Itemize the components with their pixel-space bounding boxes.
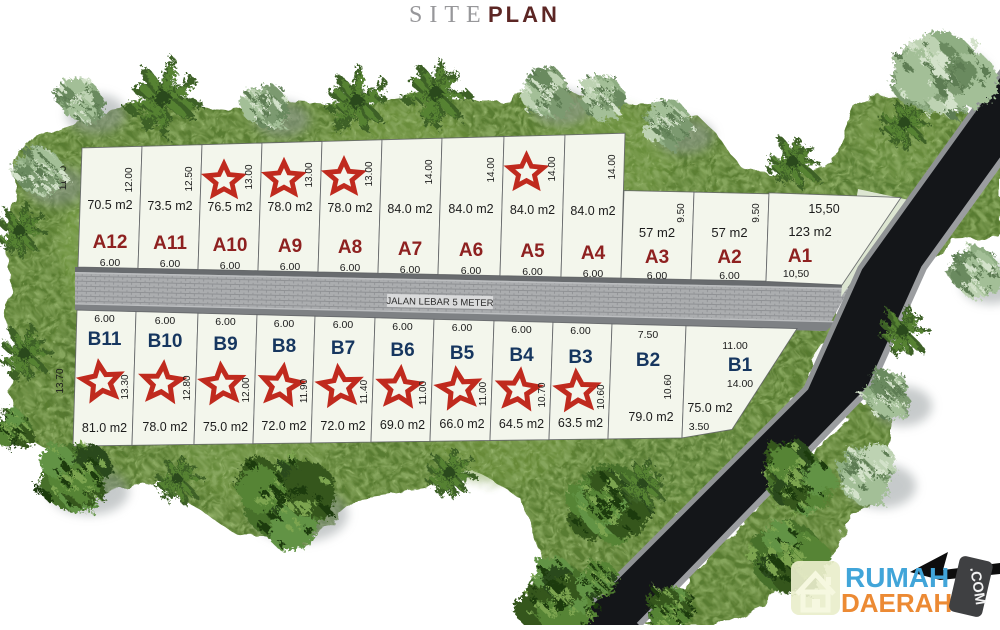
svg-text:6.00: 6.00 <box>719 270 740 282</box>
svg-text:B11: B11 <box>88 329 122 350</box>
svg-text:6.00: 6.00 <box>220 260 241 272</box>
svg-text:76.5 m2: 76.5 m2 <box>207 200 252 214</box>
svg-text:13.30: 13.30 <box>120 374 131 399</box>
svg-text:11.00: 11.00 <box>722 340 748 352</box>
svg-text:6.00: 6.00 <box>461 265 482 277</box>
svg-text:A4: A4 <box>581 243 606 264</box>
svg-text:7.50: 7.50 <box>638 329 659 341</box>
svg-text:10,50: 10,50 <box>783 268 809 280</box>
svg-text:6.00: 6.00 <box>100 257 121 269</box>
svg-text:14.00: 14.00 <box>424 159 435 184</box>
svg-text:11.00: 11.00 <box>418 380 429 405</box>
svg-text:PLAN: PLAN <box>488 2 560 27</box>
svg-text:10.60: 10.60 <box>663 374 674 399</box>
svg-text:A11: A11 <box>153 233 187 254</box>
svg-text:JALAN LEBAR 5 METER: JALAN LEBAR 5 METER <box>386 296 494 309</box>
svg-text:69.0 m2: 69.0 m2 <box>380 418 425 432</box>
svg-text:78.0 m2: 78.0 m2 <box>142 420 187 434</box>
svg-text:A5: A5 <box>520 241 545 262</box>
svg-text:A2: A2 <box>717 247 741 268</box>
svg-text:70.5 m2: 70.5 m2 <box>87 198 132 212</box>
svg-text:57 m2: 57 m2 <box>639 225 675 240</box>
svg-text:12.00: 12.00 <box>241 377 252 402</box>
svg-text:A7: A7 <box>398 239 422 260</box>
svg-text:6.00: 6.00 <box>94 313 115 325</box>
svg-text:10.70: 10.70 <box>537 382 548 407</box>
svg-text:13.00: 13.00 <box>244 164 255 189</box>
svg-text:6.00: 6.00 <box>570 325 591 337</box>
svg-text:79.0 m2: 79.0 m2 <box>628 410 673 424</box>
svg-text:75.0 m2: 75.0 m2 <box>203 420 248 434</box>
svg-text:12.00: 12.00 <box>124 167 135 192</box>
svg-text:6.00: 6.00 <box>522 266 543 278</box>
svg-text:A6: A6 <box>459 240 483 261</box>
svg-text:72.0 m2: 72.0 m2 <box>261 419 306 433</box>
svg-text:9.50: 9.50 <box>751 203 762 223</box>
svg-text:B1: B1 <box>728 355 753 376</box>
svg-text:75.0 m2: 75.0 m2 <box>687 401 732 415</box>
svg-text:6.00: 6.00 <box>333 319 354 331</box>
svg-text:6.00: 6.00 <box>400 264 421 276</box>
svg-text:B2: B2 <box>636 350 660 371</box>
svg-text:6.00: 6.00 <box>215 316 236 328</box>
svg-text:B7: B7 <box>331 338 355 359</box>
svg-text:66.0 m2: 66.0 m2 <box>439 417 484 431</box>
svg-text:6.00: 6.00 <box>274 318 295 330</box>
svg-text:3.50: 3.50 <box>689 421 710 433</box>
svg-text:14.00: 14.00 <box>486 157 497 182</box>
svg-text:A12: A12 <box>93 232 128 253</box>
svg-text:6.00: 6.00 <box>340 262 361 274</box>
svg-text:10.60: 10.60 <box>596 384 607 409</box>
svg-text:63.5 m2: 63.5 m2 <box>558 416 603 430</box>
svg-text:81.0 m2: 81.0 m2 <box>82 421 127 435</box>
svg-text:72.0 m2: 72.0 m2 <box>320 419 365 433</box>
svg-text:64.5 m2: 64.5 m2 <box>499 417 544 431</box>
svg-text:A1: A1 <box>788 246 813 267</box>
svg-text:13.00: 13.00 <box>364 161 375 186</box>
svg-text:A8: A8 <box>338 237 362 258</box>
svg-text:6.00: 6.00 <box>583 268 604 280</box>
svg-text:B9: B9 <box>213 334 237 355</box>
svg-text:84.0 m2: 84.0 m2 <box>570 204 615 218</box>
svg-text:123 m2: 123 m2 <box>788 224 831 239</box>
svg-text:73.5 m2: 73.5 m2 <box>147 199 192 213</box>
svg-text:78.0 m2: 78.0 m2 <box>267 200 312 214</box>
svg-text:84.0 m2: 84.0 m2 <box>510 203 555 217</box>
svg-text:84.0 m2: 84.0 m2 <box>387 202 432 216</box>
svg-text:A10: A10 <box>213 235 248 256</box>
svg-text:12.50: 12.50 <box>184 166 195 191</box>
svg-text:11.40: 11.40 <box>359 379 370 404</box>
svg-text:6.00: 6.00 <box>155 315 176 327</box>
svg-text:6.00: 6.00 <box>647 270 668 282</box>
svg-text:B10: B10 <box>148 331 183 352</box>
svg-text:A9: A9 <box>278 236 302 257</box>
svg-text:57 m2: 57 m2 <box>711 225 747 240</box>
svg-text:14.00: 14.00 <box>727 378 753 390</box>
svg-text:12.80: 12.80 <box>182 375 193 400</box>
svg-text:14.00: 14.00 <box>607 154 618 179</box>
svg-text:DAERAH: DAERAH <box>841 588 952 618</box>
svg-text:13.70: 13.70 <box>55 368 66 393</box>
svg-text:SITE: SITE <box>409 2 488 28</box>
svg-text:11.90: 11.90 <box>299 378 310 403</box>
svg-text:B5: B5 <box>450 343 475 364</box>
svg-text:B6: B6 <box>390 340 414 361</box>
svg-text:14.00: 14.00 <box>547 156 558 181</box>
svg-text:B8: B8 <box>272 336 296 357</box>
svg-text:78.0 m2: 78.0 m2 <box>327 201 372 215</box>
svg-text:6.00: 6.00 <box>280 261 301 273</box>
svg-text:9.50: 9.50 <box>676 203 687 223</box>
svg-text:11.00: 11.00 <box>478 381 489 406</box>
svg-text:B4: B4 <box>509 345 534 366</box>
svg-text:6.00: 6.00 <box>511 324 532 336</box>
svg-text:6.00: 6.00 <box>160 258 181 270</box>
svg-text:A3: A3 <box>645 247 669 268</box>
svg-text:84.0 m2: 84.0 m2 <box>448 202 493 216</box>
svg-text:6.00: 6.00 <box>392 321 413 333</box>
svg-text:15,50: 15,50 <box>808 202 839 216</box>
svg-text:13.00: 13.00 <box>304 162 315 187</box>
svg-text:6.00: 6.00 <box>452 322 473 334</box>
svg-text:B3: B3 <box>568 347 592 368</box>
